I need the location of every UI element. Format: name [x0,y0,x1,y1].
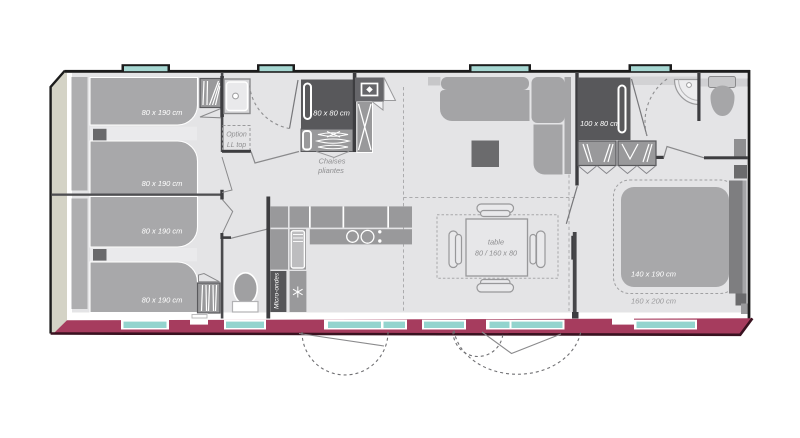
svg-text:80 x 80 cm: 80 x 80 cm [313,109,350,118]
svg-text:140 x 190 cm: 140 x 190 cm [631,270,676,279]
svg-text:80 x 190 cm: 80 x 190 cm [142,179,183,188]
svg-text:100 x 80 cm: 100 x 80 cm [580,119,620,128]
svg-text:160 x 200 cm: 160 x 200 cm [631,297,676,306]
svg-text:Chaises: Chaises [318,157,345,166]
svg-text:Option: Option [226,132,247,139]
svg-text:80 x 190 cm: 80 x 190 cm [142,108,183,117]
svg-text:80 / 160 x 80: 80 / 160 x 80 [475,249,517,258]
svg-text:80 x 190 cm: 80 x 190 cm [142,227,183,236]
svg-text:Micro-ondes: Micro-ondes [273,272,280,309]
svg-text:table: table [488,238,504,247]
svg-text:LL top: LL top [227,142,246,149]
svg-text:80 x 190 cm: 80 x 190 cm [142,296,183,305]
svg-text:pliantes: pliantes [317,166,344,175]
